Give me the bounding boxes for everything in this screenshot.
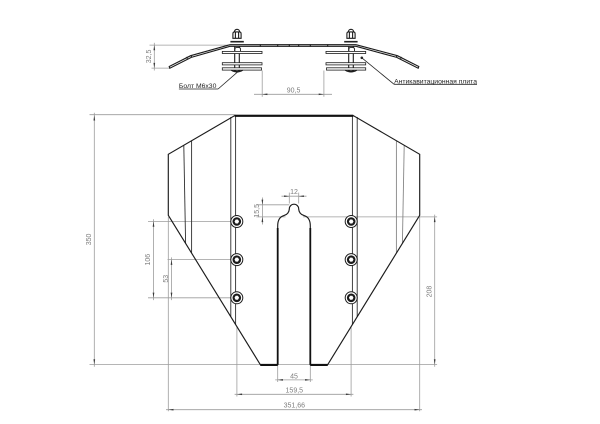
svg-text:12: 12 (290, 189, 298, 196)
svg-text:159,5: 159,5 (286, 387, 304, 394)
svg-text:106: 106 (145, 254, 152, 266)
svg-text:208: 208 (426, 286, 433, 298)
svg-text:32,5: 32,5 (146, 49, 153, 63)
svg-text:53: 53 (163, 275, 170, 283)
svg-text:15,5: 15,5 (254, 204, 261, 218)
svg-text:90,5: 90,5 (287, 88, 301, 95)
svg-text:351,66: 351,66 (284, 403, 306, 410)
svg-text:45: 45 (290, 373, 298, 380)
svg-text:350: 350 (86, 233, 93, 245)
